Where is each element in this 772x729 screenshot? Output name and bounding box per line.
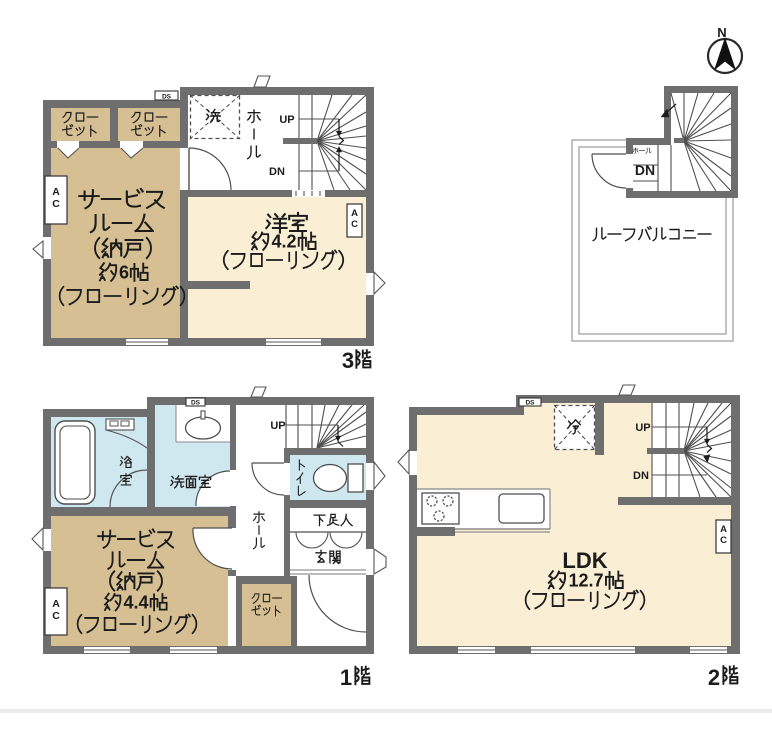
svg-text:DN: DN — [635, 162, 655, 178]
svg-text:UP: UP — [279, 114, 294, 126]
svg-text:3: 3 — [342, 348, 354, 373]
svg-text:UP: UP — [635, 422, 650, 434]
svg-text:4.4: 4.4 — [123, 592, 148, 612]
svg-text:C: C — [351, 219, 358, 230]
svg-text:DS: DS — [162, 94, 172, 101]
svg-text:N: N — [717, 25, 726, 40]
svg-text:A: A — [52, 598, 60, 610]
svg-text:A: A — [720, 524, 727, 535]
svg-text:DS: DS — [525, 400, 535, 407]
svg-text:2: 2 — [708, 665, 720, 690]
svg-text:UP: UP — [270, 420, 285, 432]
svg-text:12.7: 12.7 — [568, 570, 603, 590]
svg-text:C: C — [52, 198, 60, 210]
svg-text:LDK: LDK — [562, 548, 607, 573]
svg-text:6: 6 — [119, 262, 129, 282]
svg-text:DN: DN — [633, 470, 649, 482]
svg-text:4.2: 4.2 — [271, 231, 296, 251]
svg-text:A: A — [52, 186, 60, 198]
svg-text:DN: DN — [269, 166, 285, 178]
svg-text:DS: DS — [191, 400, 201, 407]
svg-text:1: 1 — [340, 665, 352, 690]
svg-text:A: A — [351, 208, 358, 219]
svg-text:C: C — [52, 610, 60, 622]
svg-text:C: C — [720, 535, 727, 546]
